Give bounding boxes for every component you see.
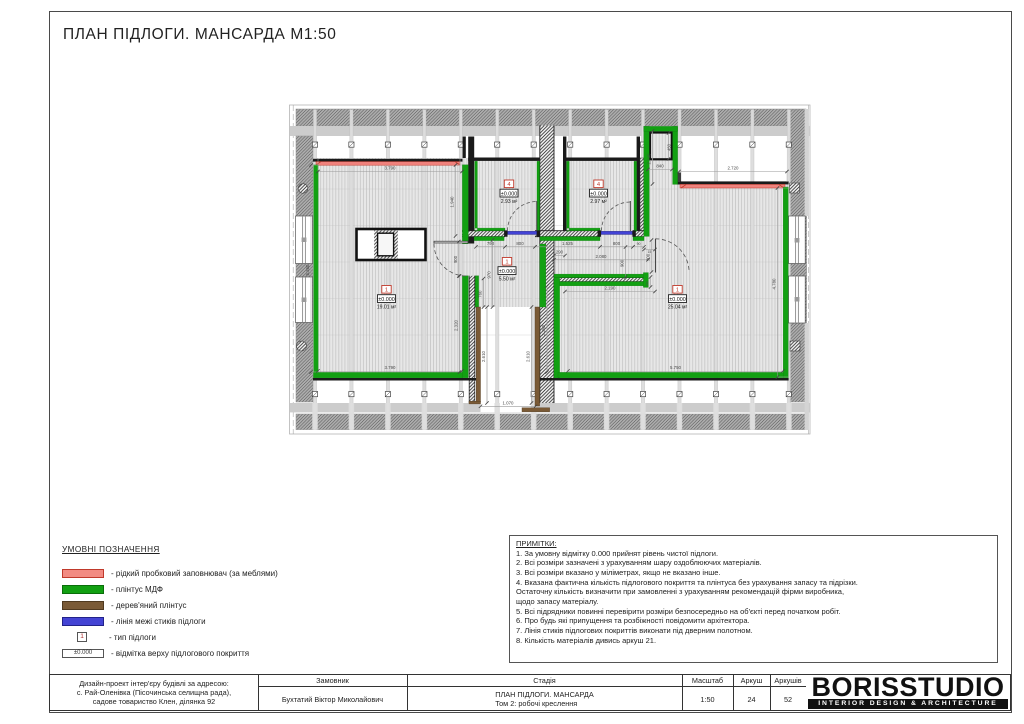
svg-text:840: 840 [656,164,664,169]
svg-text:970: 970 [487,271,492,279]
svg-text:900: 900 [620,259,625,267]
svg-text:1: 1 [676,288,679,294]
svg-text:2.93 м²: 2.93 м² [501,199,518,205]
svg-text:2.380: 2.380 [541,324,546,336]
svg-text:±0.000: ±0.000 [501,192,517,198]
svg-text:15: 15 [648,250,652,254]
svg-text:19.01 м²: 19.01 м² [377,305,397,311]
svg-text:5.50 м²: 5.50 м² [499,277,516,283]
svg-text:2.610: 2.610 [526,350,531,362]
svg-text:760: 760 [478,290,483,298]
svg-text:800: 800 [613,241,621,246]
svg-text:1: 1 [505,260,508,266]
svg-text:±0.000: ±0.000 [669,297,685,303]
svg-text:1.070: 1.070 [503,401,515,406]
svg-text:3.790: 3.790 [385,166,397,171]
svg-text:190: 190 [646,281,650,287]
svg-text:2.610: 2.610 [481,350,486,362]
svg-text:1.940: 1.940 [450,196,455,208]
svg-text:2.740: 2.740 [647,153,652,165]
svg-text:±0.000: ±0.000 [378,297,394,303]
svg-text:2.720: 2.720 [728,166,740,171]
svg-text:2.320: 2.320 [454,319,459,331]
svg-text:790: 790 [487,241,495,246]
svg-text:2.97 м²: 2.97 м² [590,199,607,205]
svg-text:1: 1 [385,288,388,294]
svg-text:4.780: 4.780 [772,278,777,290]
svg-text:2.190: 2.190 [605,286,617,291]
svg-text:5.750: 5.750 [670,365,682,370]
svg-text:900: 900 [453,255,458,263]
svg-text:±0.000: ±0.000 [590,192,606,198]
svg-text:800: 800 [516,241,524,246]
svg-text:90: 90 [637,242,641,246]
svg-text:3.790: 3.790 [385,365,397,370]
svg-text:290: 290 [556,250,564,255]
svg-text:1.525: 1.525 [562,241,574,246]
svg-text:900: 900 [646,253,651,261]
svg-text:450: 450 [667,143,672,151]
svg-text:2.080: 2.080 [596,254,608,259]
svg-text:5.360: 5.360 [305,264,310,276]
svg-text:25.04 м²: 25.04 м² [668,305,688,311]
svg-text:±0.000: ±0.000 [499,269,515,275]
